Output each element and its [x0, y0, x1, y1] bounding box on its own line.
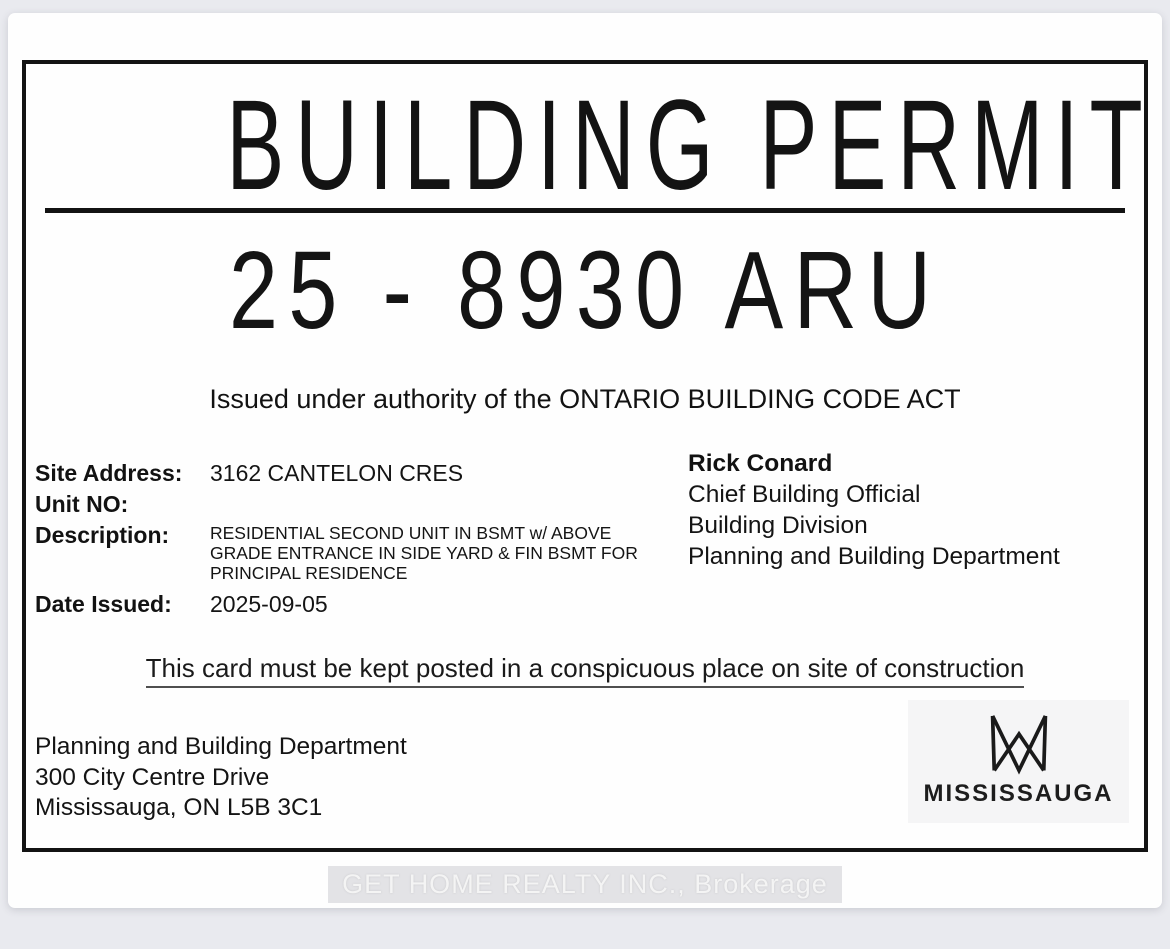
description-value: RESIDENTIAL SECOND UNIT IN BSMT w/ ABOVE…: [210, 523, 658, 583]
description-label: Description:: [35, 521, 169, 549]
official-division: Building Division: [688, 510, 1060, 541]
screenshot-canvas: BUILDING PERMIT 25 - 8930 ARU Issued und…: [0, 0, 1170, 949]
official-department: Planning and Building Department: [688, 541, 1060, 572]
permit-card: BUILDING PERMIT 25 - 8930 ARU Issued und…: [8, 13, 1162, 908]
brokerage-watermark: GET HOME REALTY INC., Brokerage: [8, 866, 1162, 903]
mississauga-m-icon: [908, 711, 1129, 777]
issuer-address-block: Planning and Building Department 300 Cit…: [35, 732, 407, 824]
title-underline: [45, 208, 1125, 213]
posting-notice-text: This card must be kept posted in a consp…: [146, 653, 1025, 688]
issuer-city: Mississauga, ON L5B 3C1: [35, 793, 407, 824]
mississauga-wordmark: MISSISSAUGA: [908, 780, 1129, 808]
site-address-value: 3162 CANTELON CRES: [210, 459, 463, 487]
issuer-department: Planning and Building Department: [35, 732, 407, 763]
brokerage-watermark-text: GET HOME REALTY INC., Brokerage: [328, 866, 842, 903]
authority-line: Issued under authority of the ONTARIO BU…: [8, 383, 1162, 415]
date-issued-value: 2025-09-05: [210, 590, 328, 618]
official-title: Chief Building Official: [688, 479, 1060, 510]
official-signature-block: Rick Conard Chief Building Official Buil…: [688, 448, 1060, 572]
permit-number-text: 25 - 8930 ARU: [229, 236, 941, 346]
permit-title: BUILDING PERMIT: [8, 82, 1162, 210]
unit-no-label: Unit NO:: [35, 490, 128, 518]
date-issued-label: Date Issued:: [35, 590, 172, 618]
permit-number: 25 - 8930 ARU: [8, 236, 1162, 346]
site-address-label: Site Address:: [35, 459, 182, 487]
official-name: Rick Conard: [688, 448, 1060, 479]
mississauga-logo: MISSISSAUGA: [908, 700, 1129, 823]
posting-notice: This card must be kept posted in a consp…: [8, 653, 1162, 684]
issuer-street: 300 City Centre Drive: [35, 763, 407, 794]
permit-title-text: BUILDING PERMIT: [226, 82, 1153, 210]
